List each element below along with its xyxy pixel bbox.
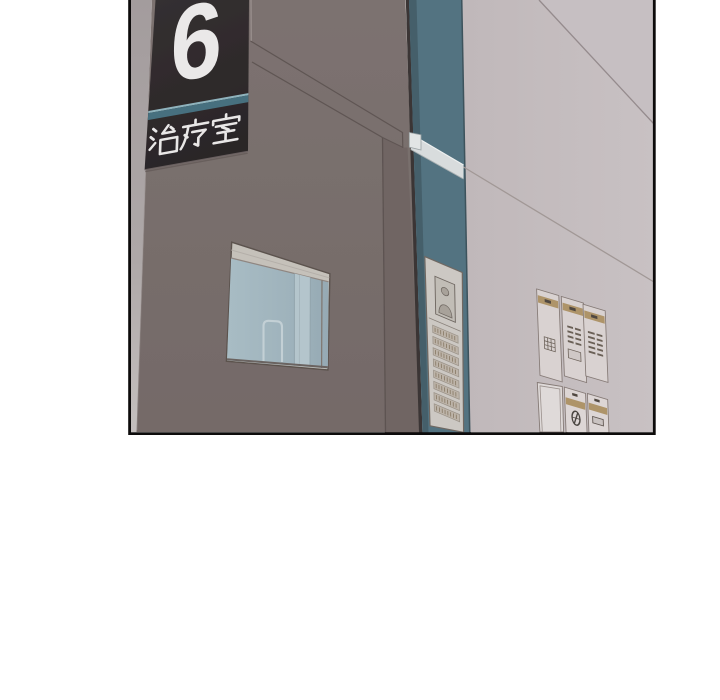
svg-text:6: 6 xyxy=(169,0,225,106)
